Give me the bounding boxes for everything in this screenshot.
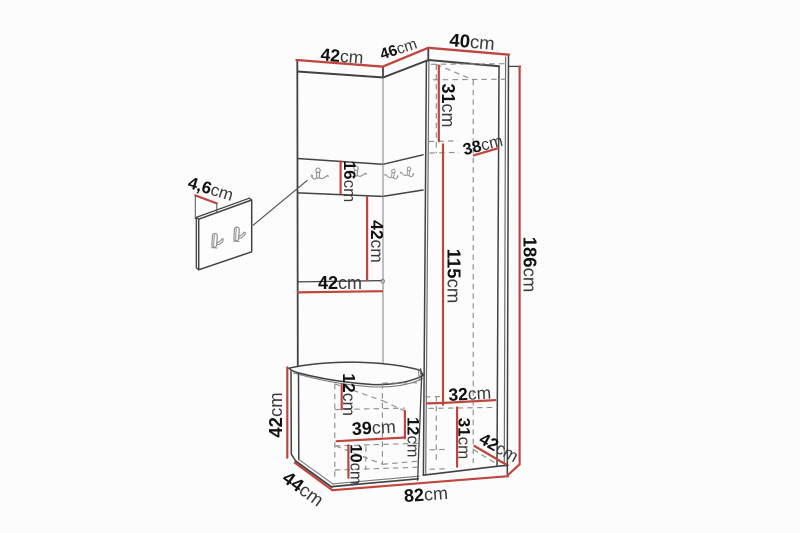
svg-text:16cm: 16cm: [340, 161, 359, 203]
svg-text:42cm: 42cm: [320, 44, 364, 67]
svg-text:42cm: 42cm: [367, 220, 387, 263]
svg-text:39cm: 39cm: [351, 417, 396, 439]
svg-text:40cm: 40cm: [449, 29, 496, 54]
svg-text:186cm: 186cm: [519, 237, 540, 293]
svg-text:31cm: 31cm: [455, 418, 474, 460]
svg-text:10cm: 10cm: [346, 444, 364, 484]
svg-text:12cm: 12cm: [339, 373, 359, 416]
svg-text:42cm: 42cm: [265, 392, 286, 437]
svg-text:82cm: 82cm: [403, 483, 448, 506]
svg-text:42cm: 42cm: [318, 273, 362, 293]
svg-text:115cm: 115cm: [444, 249, 465, 304]
svg-text:32cm: 32cm: [448, 383, 492, 405]
svg-text:31cm: 31cm: [438, 83, 458, 127]
svg-text:12cm: 12cm: [403, 417, 421, 457]
